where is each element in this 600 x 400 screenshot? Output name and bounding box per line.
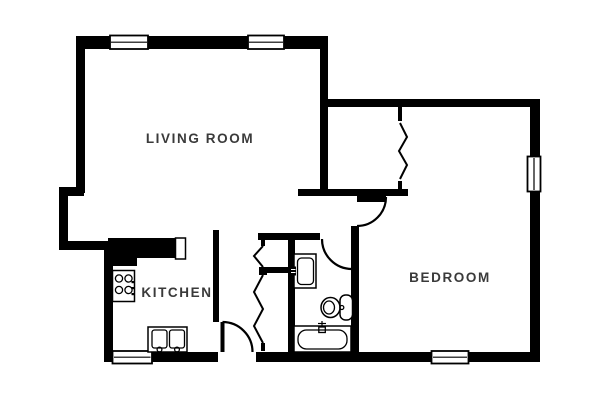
kitchen-sink-icon (148, 327, 187, 355)
window-bedroom-right (528, 157, 541, 192)
kitchen-label: KITCHEN (141, 285, 212, 300)
wall-right (530, 99, 540, 362)
bathtub-icon (294, 321, 351, 352)
wall-hall-top (298, 189, 408, 196)
bedroom-label: BEDROOM (409, 270, 491, 285)
wall-bedroom-top (320, 99, 540, 107)
window-top-right (248, 36, 284, 50)
window-top-left (110, 36, 148, 50)
wall-kitchen-right (213, 230, 219, 322)
wall-left-middle (59, 187, 68, 250)
wall-left-upper (76, 36, 85, 193)
living-room-label: LIVING ROOM (146, 131, 254, 146)
window-bedroom-bottom (432, 351, 469, 364)
wall-bottom-right (256, 352, 540, 362)
window-kitchen-bottom (113, 351, 153, 364)
wall-living-right (320, 36, 328, 195)
floor-plan: LIVING ROOM KITCHEN BEDROOM (0, 0, 600, 400)
vanity-sink-icon (291, 254, 317, 288)
kitchen-counter-end (176, 238, 186, 259)
wall-closet-top (258, 233, 320, 240)
kitchen-counter-corner (108, 238, 137, 266)
stove-icon (113, 271, 135, 302)
floor-plan-canvas: LIVING ROOM KITCHEN BEDROOM (0, 0, 600, 400)
wall-bedroom-hall (351, 226, 359, 352)
bedroom-door-leaf (357, 195, 386, 202)
